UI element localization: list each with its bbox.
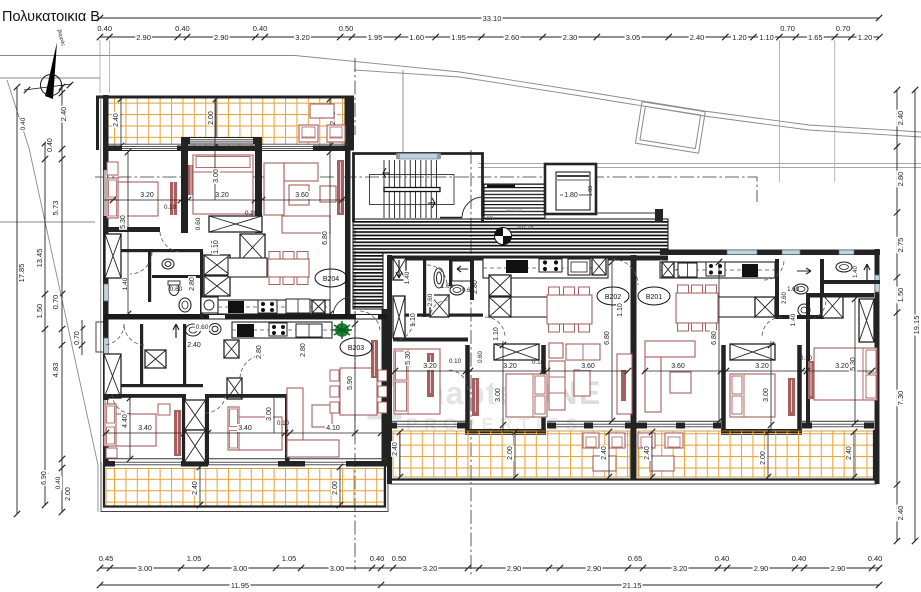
svg-text:1.10: 1.10 bbox=[617, 303, 624, 317]
svg-text:Πολυκατοικια Β: Πολυκατοικια Β bbox=[2, 9, 100, 25]
svg-text:6.80: 6.80 bbox=[711, 331, 718, 345]
svg-text:2.40: 2.40 bbox=[59, 107, 68, 122]
svg-text:2.00: 2.00 bbox=[208, 111, 215, 125]
svg-text:B202: B202 bbox=[605, 294, 621, 301]
svg-text:2.80: 2.80 bbox=[300, 343, 307, 357]
svg-text:B203: B203 bbox=[348, 345, 364, 352]
svg-text:1.80: 1.80 bbox=[564, 192, 578, 199]
svg-text:0.70: 0.70 bbox=[780, 24, 795, 33]
svg-text:1.20: 1.20 bbox=[858, 33, 873, 42]
svg-text:2.75: 2.75 bbox=[896, 238, 905, 253]
svg-text:2.40: 2.40 bbox=[644, 446, 651, 460]
svg-text:3.60: 3.60 bbox=[581, 363, 595, 370]
svg-text:5.90: 5.90 bbox=[347, 376, 354, 390]
svg-text:3.00: 3.00 bbox=[233, 564, 248, 573]
svg-text:2.40: 2.40 bbox=[896, 506, 905, 521]
svg-text:0.40: 0.40 bbox=[715, 554, 730, 563]
svg-text:2.80: 2.80 bbox=[896, 172, 905, 187]
svg-text:0.40: 0.40 bbox=[253, 24, 268, 33]
svg-text:2.90: 2.90 bbox=[587, 564, 602, 573]
svg-text:2.80: 2.80 bbox=[189, 277, 196, 291]
svg-text:2.40: 2.40 bbox=[113, 113, 120, 127]
svg-text:0.60: 0.60 bbox=[462, 288, 474, 294]
svg-text:0.40: 0.40 bbox=[97, 24, 112, 33]
svg-text:0.10: 0.10 bbox=[449, 358, 462, 365]
svg-text:1.60: 1.60 bbox=[441, 283, 454, 290]
svg-text:2.40: 2.40 bbox=[192, 481, 199, 495]
svg-text:0.50: 0.50 bbox=[392, 554, 407, 563]
svg-text:1.10: 1.10 bbox=[493, 327, 500, 341]
svg-text:2.60: 2.60 bbox=[505, 33, 520, 42]
svg-text:3.20: 3.20 bbox=[755, 363, 769, 370]
svg-text:5.30: 5.30 bbox=[850, 357, 857, 371]
svg-text:0.50: 0.50 bbox=[339, 24, 354, 33]
svg-text:2.00: 2.00 bbox=[65, 487, 72, 501]
svg-text:3.40: 3.40 bbox=[238, 425, 252, 432]
svg-text:1.05: 1.05 bbox=[282, 554, 297, 563]
svg-text:2.40: 2.40 bbox=[846, 446, 853, 460]
svg-text:4.83: 4.83 bbox=[51, 363, 60, 378]
svg-text:3.05: 3.05 bbox=[626, 33, 641, 42]
svg-text:0.60: 0.60 bbox=[478, 351, 484, 363]
svg-text:0.70: 0.70 bbox=[836, 24, 851, 33]
svg-text:3.60: 3.60 bbox=[295, 192, 309, 199]
svg-text:0.40: 0.40 bbox=[47, 138, 54, 152]
svg-text:6.80: 6.80 bbox=[322, 231, 329, 245]
svg-text:1.80: 1.80 bbox=[588, 186, 594, 197]
svg-text:2.90: 2.90 bbox=[754, 564, 769, 573]
svg-text:B204: B204 bbox=[323, 276, 339, 283]
svg-text:0.40: 0.40 bbox=[20, 117, 27, 130]
svg-text:1.40: 1.40 bbox=[122, 277, 129, 290]
svg-text:1.60: 1.60 bbox=[787, 287, 799, 293]
svg-text:1.20: 1.20 bbox=[732, 33, 747, 42]
svg-text:0.10: 0.10 bbox=[245, 210, 258, 217]
svg-text:2.00: 2.00 bbox=[760, 451, 767, 465]
svg-text:33.10: 33.10 bbox=[483, 14, 502, 23]
svg-text:6.80: 6.80 bbox=[604, 331, 611, 345]
svg-text:0.45: 0.45 bbox=[99, 554, 114, 563]
svg-text:6.90: 6.90 bbox=[41, 471, 48, 485]
svg-text:2.60: 2.60 bbox=[427, 293, 434, 306]
svg-text:0.60: 0.60 bbox=[170, 286, 183, 293]
svg-text:3.00: 3.00 bbox=[763, 388, 770, 402]
svg-text:2.00: 2.00 bbox=[507, 446, 514, 460]
svg-text:3.20: 3.20 bbox=[673, 564, 688, 573]
svg-text:2.40: 2.40 bbox=[896, 111, 905, 126]
svg-text:2.30: 2.30 bbox=[563, 33, 578, 42]
svg-text:5.73: 5.73 bbox=[51, 201, 60, 216]
svg-text:2.90: 2.90 bbox=[507, 564, 522, 573]
svg-text:1.95: 1.95 bbox=[368, 33, 383, 42]
svg-text:0.40: 0.40 bbox=[55, 476, 62, 489]
svg-text:3.20: 3.20 bbox=[140, 192, 154, 199]
svg-text:0.60: 0.60 bbox=[196, 324, 209, 331]
svg-text:1.60: 1.60 bbox=[409, 33, 424, 42]
svg-text:1.50: 1.50 bbox=[896, 288, 905, 303]
svg-text:3.60: 3.60 bbox=[671, 363, 685, 370]
svg-text:5.30: 5.30 bbox=[120, 215, 127, 229]
svg-text:0.10: 0.10 bbox=[164, 204, 177, 211]
svg-text:3.00: 3.00 bbox=[266, 407, 273, 421]
svg-text:1.95: 1.95 bbox=[451, 33, 466, 42]
svg-text:2.40: 2.40 bbox=[690, 33, 705, 42]
svg-text:5.30: 5.30 bbox=[405, 351, 412, 365]
svg-text:1.40: 1.40 bbox=[790, 313, 797, 326]
svg-text:1.40: 1.40 bbox=[853, 266, 859, 278]
svg-text:0.10: 0.10 bbox=[532, 359, 545, 366]
svg-text:1.10: 1.10 bbox=[410, 313, 417, 327]
svg-text:17.85: 17.85 bbox=[17, 264, 26, 283]
svg-text:B201: B201 bbox=[646, 294, 662, 301]
svg-text:3.20: 3.20 bbox=[215, 192, 229, 199]
svg-text:ΑΝΟΔΟΣ: ΑΝΟΔΟΣ bbox=[506, 208, 523, 213]
svg-text:0.60: 0.60 bbox=[195, 217, 202, 230]
svg-text:3.20: 3.20 bbox=[295, 33, 310, 42]
svg-text:2.60: 2.60 bbox=[782, 292, 788, 304]
svg-text:0.70: 0.70 bbox=[74, 331, 81, 345]
svg-text:3.20: 3.20 bbox=[503, 363, 517, 370]
svg-text:3.00: 3.00 bbox=[330, 564, 345, 573]
svg-text:1.10: 1.10 bbox=[213, 240, 220, 254]
svg-text:0.70: 0.70 bbox=[51, 295, 60, 310]
svg-text:Θ.ΔΒ: Θ.ΔΒ bbox=[481, 216, 494, 222]
svg-text:2.90: 2.90 bbox=[214, 33, 229, 42]
svg-text:0.40: 0.40 bbox=[792, 554, 807, 563]
svg-text:2.40: 2.40 bbox=[392, 442, 399, 456]
svg-text:1.50: 1.50 bbox=[35, 304, 44, 319]
svg-text:3.20: 3.20 bbox=[423, 363, 437, 370]
svg-text:11.95: 11.95 bbox=[231, 581, 249, 590]
svg-text:1.05: 1.05 bbox=[187, 554, 202, 563]
svg-text:3.00: 3.00 bbox=[213, 169, 220, 183]
svg-text:4.10: 4.10 bbox=[326, 425, 340, 432]
svg-text:0.40: 0.40 bbox=[370, 554, 385, 563]
svg-text:2.80: 2.80 bbox=[256, 345, 263, 359]
svg-text:19.15: 19.15 bbox=[912, 316, 921, 335]
svg-text:0.10: 0.10 bbox=[277, 420, 290, 427]
svg-text:202.75: 202.75 bbox=[517, 225, 534, 231]
svg-text:1.40: 1.40 bbox=[404, 271, 411, 284]
svg-text:0.65: 0.65 bbox=[628, 554, 643, 563]
svg-text:2.00: 2.00 bbox=[332, 481, 339, 495]
svg-text:2.40: 2.40 bbox=[601, 446, 608, 460]
svg-text:1.65: 1.65 bbox=[808, 33, 823, 42]
svg-text:7.30: 7.30 bbox=[896, 391, 905, 406]
svg-text:0.10: 0.10 bbox=[800, 355, 813, 362]
svg-text:1.10: 1.10 bbox=[759, 33, 774, 42]
svg-text:4.40: 4.40 bbox=[122, 414, 129, 428]
svg-text:3.20: 3.20 bbox=[835, 363, 849, 370]
svg-text:0.40: 0.40 bbox=[175, 24, 190, 33]
svg-text:0.40: 0.40 bbox=[868, 554, 883, 563]
svg-text:21.15: 21.15 bbox=[623, 581, 642, 590]
svg-text:2.40: 2.40 bbox=[187, 342, 201, 349]
svg-text:3.00: 3.00 bbox=[138, 564, 153, 573]
svg-text:2.90: 2.90 bbox=[831, 564, 846, 573]
svg-text:2.90: 2.90 bbox=[136, 33, 151, 42]
svg-text:3.40: 3.40 bbox=[138, 425, 152, 432]
svg-text:13.45: 13.45 bbox=[35, 249, 44, 268]
svg-text:3.00: 3.00 bbox=[495, 388, 502, 402]
svg-text:3.20: 3.20 bbox=[423, 564, 438, 573]
